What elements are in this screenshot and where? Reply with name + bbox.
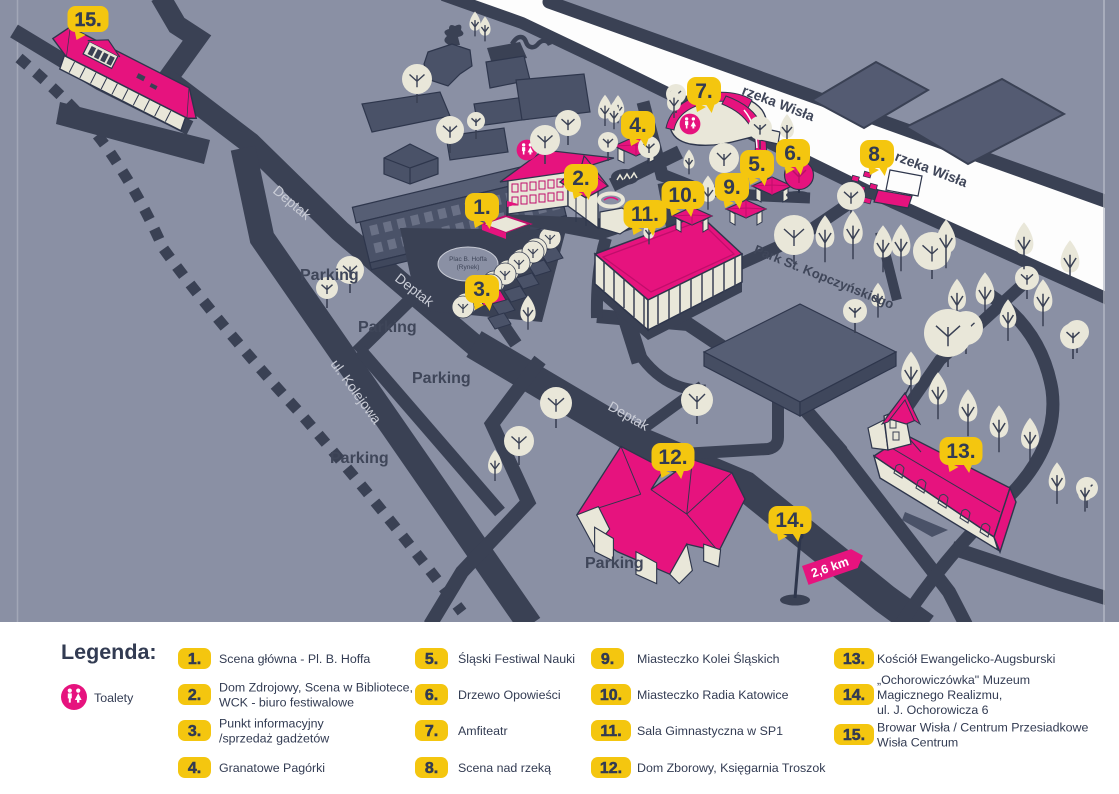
svg-text:Browar Wisła / Centrum Przesia: Browar Wisła / Centrum Przesiadkowe xyxy=(877,721,1089,735)
svg-text:Wisła Centrum: Wisła Centrum xyxy=(877,736,958,750)
svg-text:WCK - biuro festiwalowe: WCK - biuro festiwalowe xyxy=(219,696,354,710)
svg-text:3.: 3. xyxy=(188,723,201,740)
svg-text:5.: 5. xyxy=(425,651,438,668)
svg-text:15.: 15. xyxy=(74,9,101,31)
svg-text:7.: 7. xyxy=(425,723,438,740)
svg-text:11.: 11. xyxy=(631,203,659,226)
svg-text:Scena nad rzeką: Scena nad rzeką xyxy=(458,761,551,775)
svg-text:Śląski Festiwal Nauki: Śląski Festiwal Nauki xyxy=(458,651,575,666)
svg-text:4.: 4. xyxy=(188,760,201,777)
svg-text:3.: 3. xyxy=(473,278,491,301)
svg-text:10.: 10. xyxy=(600,687,622,704)
svg-text:„Ochorowiczówka" Muzeum: „Ochorowiczówka" Muzeum xyxy=(877,673,1030,687)
svg-text:6.: 6. xyxy=(425,687,438,704)
svg-text:Miasteczko Kolei Śląskich: Miasteczko Kolei Śląskich xyxy=(637,651,780,666)
svg-text:Magicznego Realizmu,: Magicznego Realizmu, xyxy=(877,688,1002,702)
svg-text:11.: 11. xyxy=(600,723,621,740)
svg-text:ul. J. Ochorowicza 6: ul. J. Ochorowicza 6 xyxy=(877,703,989,717)
svg-text:Parking: Parking xyxy=(358,319,417,336)
svg-text:1.: 1. xyxy=(473,196,491,219)
svg-text:Granatowe Pagórki: Granatowe Pagórki xyxy=(219,761,325,775)
svg-text:Dom Zborowy, Księgarnia Troszo: Dom Zborowy, Księgarnia Troszok xyxy=(637,761,826,775)
svg-text:Parking: Parking xyxy=(300,267,359,284)
svg-text:6.: 6. xyxy=(784,142,802,165)
svg-text:Plac B. Hoffa: Plac B. Hoffa xyxy=(449,256,487,263)
svg-text:Kościół Ewangelicko-Augsburski: Kościół Ewangelicko-Augsburski xyxy=(877,652,1055,666)
svg-text:Punkt informacyjny: Punkt informacyjny xyxy=(219,717,324,731)
svg-text:13.: 13. xyxy=(946,440,975,463)
svg-text:4.: 4. xyxy=(629,114,647,137)
svg-text:2.: 2. xyxy=(572,167,590,190)
svg-text:Amfiteatr: Amfiteatr xyxy=(458,724,508,738)
svg-text:Sala Gimnastyczna w SP1: Sala Gimnastyczna w SP1 xyxy=(637,724,783,738)
svg-text:Legenda:: Legenda: xyxy=(61,640,157,664)
svg-text:2.: 2. xyxy=(188,687,201,704)
svg-text:Drzewo Opowieści: Drzewo Opowieści xyxy=(458,688,561,702)
svg-text:Dom Zdrojowy, Scena w Bibliote: Dom Zdrojowy, Scena w Bibliotece, xyxy=(219,681,413,695)
svg-text:15.: 15. xyxy=(843,727,865,744)
svg-text:Toalety: Toalety xyxy=(94,691,134,705)
svg-text:12.: 12. xyxy=(658,446,687,469)
svg-text:9.: 9. xyxy=(601,651,614,668)
svg-text:8.: 8. xyxy=(425,760,438,777)
svg-text:Parking: Parking xyxy=(330,450,389,467)
svg-text:Parking: Parking xyxy=(412,370,471,387)
svg-text:Scena główna - Pl. B. Hoffa: Scena główna - Pl. B. Hoffa xyxy=(219,652,370,666)
svg-text:12.: 12. xyxy=(600,760,622,777)
svg-text:(Rynek): (Rynek) xyxy=(457,264,480,271)
svg-text:14.: 14. xyxy=(775,509,804,532)
svg-text:5.: 5. xyxy=(748,153,766,176)
svg-text:10.: 10. xyxy=(668,184,697,207)
svg-text:1.: 1. xyxy=(188,651,201,668)
svg-text:14.: 14. xyxy=(843,687,865,704)
svg-text:8.: 8. xyxy=(868,143,886,166)
svg-text:9.: 9. xyxy=(723,176,741,199)
svg-text:/sprzedaż gadżetów: /sprzedaż gadżetów xyxy=(219,732,329,746)
svg-text:13.: 13. xyxy=(843,651,865,668)
svg-text:7.: 7. xyxy=(695,80,713,103)
svg-text:Miasteczko Radia Katowice: Miasteczko Radia Katowice xyxy=(637,688,789,702)
svg-text:Parking: Parking xyxy=(585,555,644,572)
